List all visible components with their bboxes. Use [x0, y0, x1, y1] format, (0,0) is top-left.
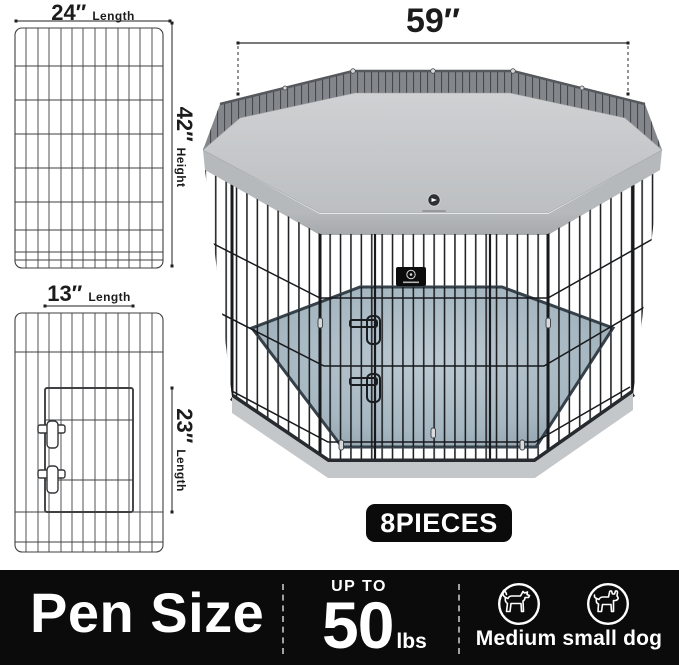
wire-panel-a: [15, 28, 163, 268]
wire-panel-b-with-door: [15, 313, 163, 552]
panel-b-height-label: 23″ Length: [171, 402, 197, 498]
dog-size-label: Medium small dog: [459, 627, 679, 651]
weight-value: 50: [322, 594, 393, 657]
panel-b-height-value: 23″: [171, 408, 197, 443]
panel-b-width-value: 13″: [47, 281, 82, 307]
small-dog-icon: [586, 582, 630, 626]
panel-b-door-frame: [45, 388, 133, 512]
pen-width-value: 59″: [406, 2, 460, 41]
brand-badge: [396, 267, 426, 286]
pen-width-label: 59″: [333, 2, 533, 41]
playpen-illustration: [200, 0, 679, 505]
spec-divider-1: [282, 584, 284, 654]
wire-panels-diagram: [0, 0, 200, 560]
panel-a-width-value: 24″: [51, 0, 86, 26]
panel-b-width-label: 13″ Length: [12, 281, 166, 307]
panel-b-width-unit: Length: [88, 290, 130, 304]
medium-dog-icon: [497, 582, 541, 626]
weight-unit: lbs: [396, 630, 426, 654]
panel-b-height-unit: Length: [174, 449, 188, 491]
panel-a-height-value: 42″: [171, 107, 197, 142]
panel-a-width-unit: Length: [92, 9, 134, 23]
panel-a-width-label: 24″ Length: [16, 0, 170, 26]
pen-size-title: Pen Size: [30, 585, 264, 641]
pieces-count-badge: 8PIECES: [366, 504, 512, 542]
product-infographic: 24″ Length 42″ Height 13″ Length 23″ Len…: [0, 0, 679, 665]
weight-limit-block: UP TO 50 lbs: [322, 578, 422, 657]
panel-a-height-unit: Height: [174, 148, 188, 188]
panel-a-height-label: 42″ Height: [171, 104, 197, 190]
spec-bar: Pen Size UP TO 50 lbs Medium small dog: [0, 570, 679, 665]
